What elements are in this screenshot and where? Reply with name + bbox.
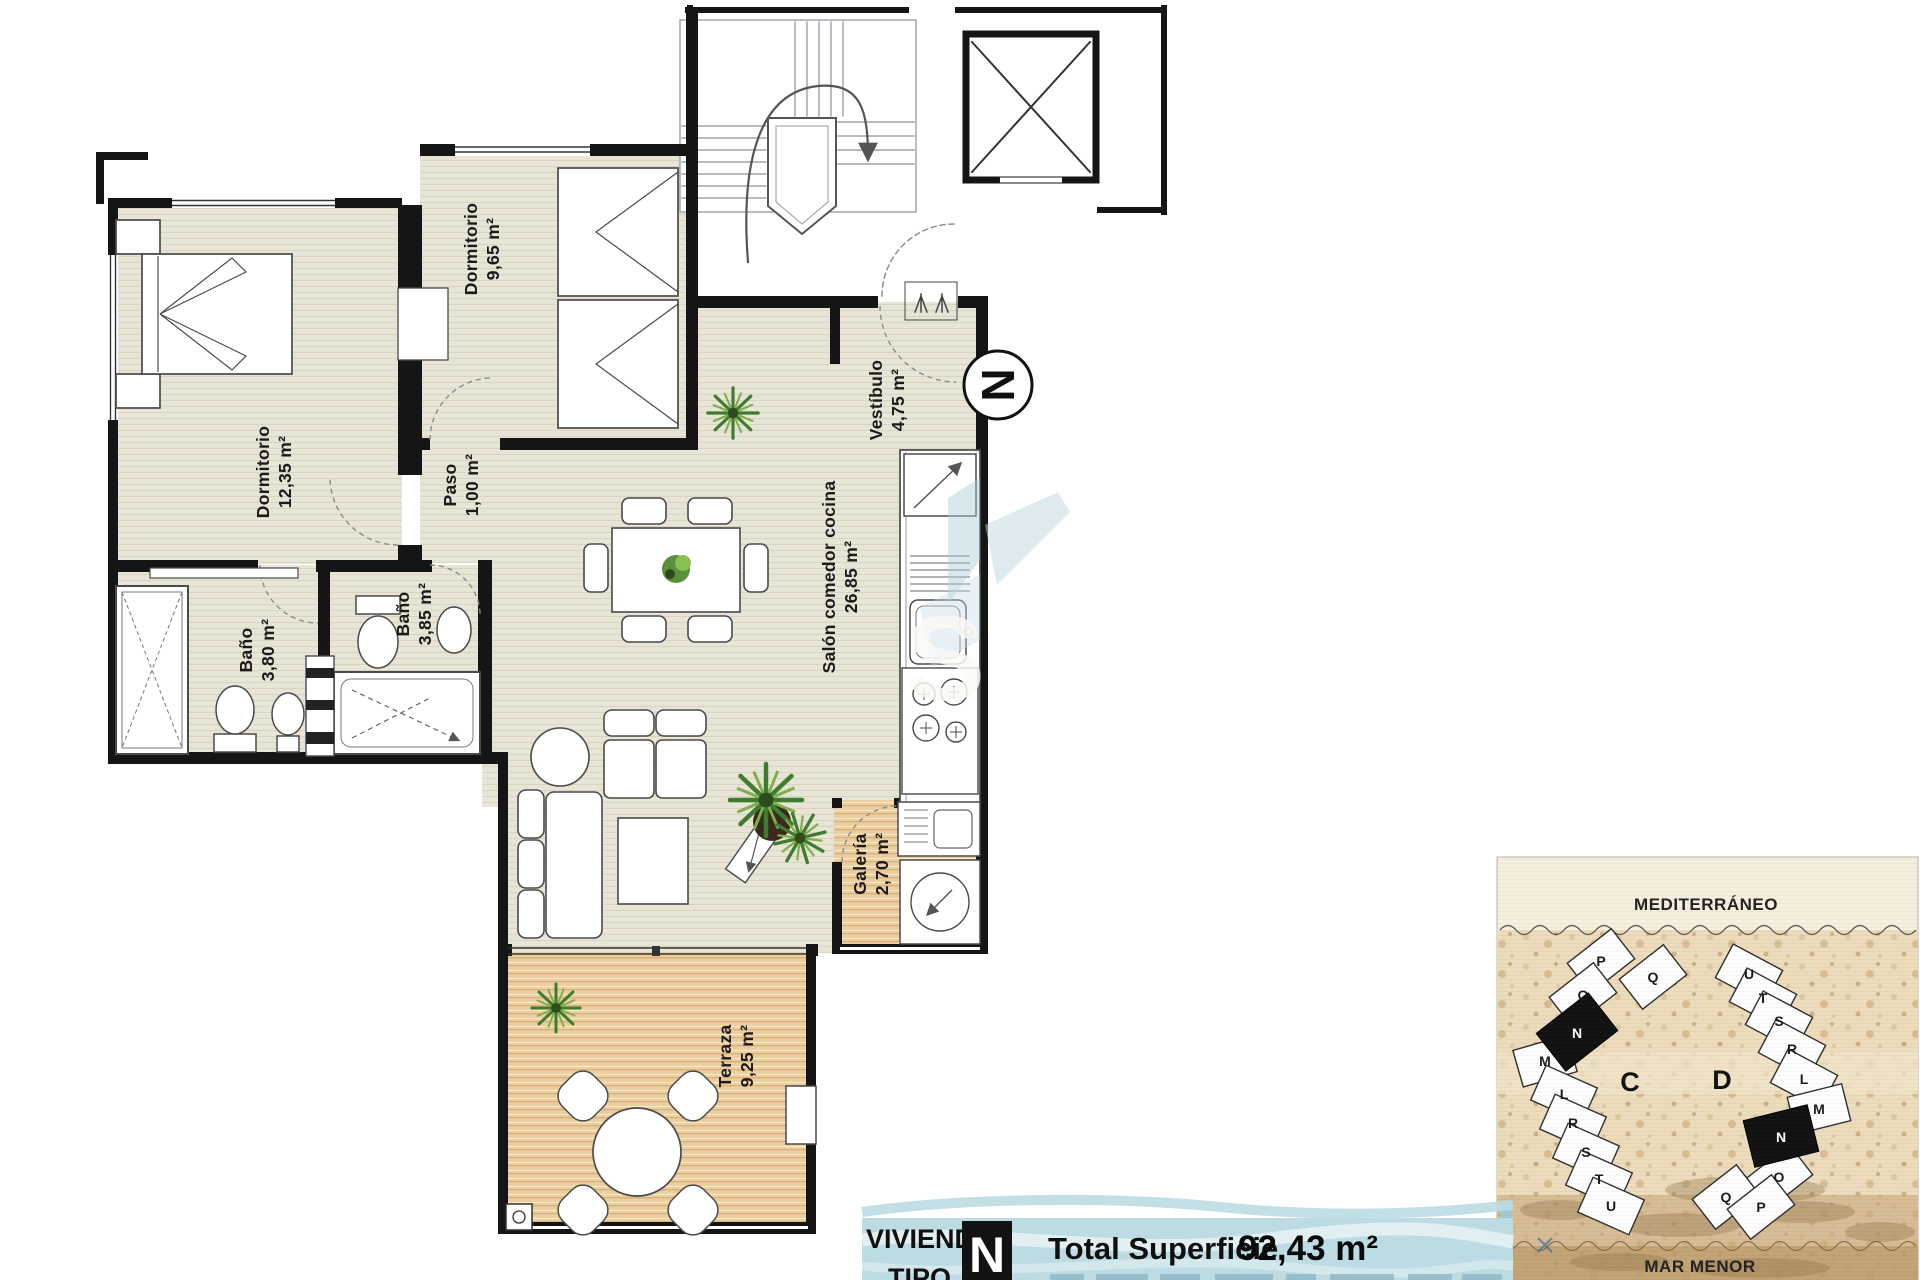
planter-box [786, 1086, 816, 1144]
stair-core [680, 8, 1164, 320]
type-letter: N [969, 1227, 1005, 1280]
site-map: MEDITERRÁNEO P Q O N M L R S T U C [1497, 857, 1918, 1280]
north-arrow: N [964, 351, 1032, 419]
shelf-unit [306, 656, 334, 756]
toilet [214, 686, 256, 752]
sink [437, 607, 471, 653]
total-superficie-value: 92,43 m² [1238, 1229, 1378, 1268]
corner-drain [506, 1204, 532, 1230]
svg-text:Vestíbulo: Vestíbulo [866, 360, 886, 441]
laundry-sink [898, 802, 980, 856]
svg-text:Terraza: Terraza [715, 1024, 735, 1087]
svg-text:4,75 m²: 4,75 m² [888, 369, 908, 431]
svg-text:26,85 m²: 26,85 m² [841, 541, 861, 613]
svg-text:Galería: Galería [850, 833, 870, 894]
svg-text:Baño: Baño [393, 592, 413, 637]
svg-text:Dormitorio: Dormitorio [461, 203, 481, 295]
tipo-label: TIPO [888, 1263, 951, 1280]
svg-text:Paso: Paso [440, 463, 460, 506]
svg-text:Dormitorio: Dormitorio [253, 426, 273, 518]
north-letter: N [972, 368, 1024, 401]
title-block: VIVIENDA TIPO N Total Superficie 92,43 m… [862, 1200, 1513, 1280]
watermark-letter: S [905, 592, 985, 726]
svg-text:9,65 m²: 9,65 m² [483, 218, 503, 280]
plan-canvas: S Dormitorio 12,35 m² Dormitorio 9,65 m²… [0, 0, 1920, 1280]
bathtub [334, 672, 480, 754]
svg-text:9,25 m²: 9,25 m² [737, 1025, 757, 1087]
terrace-table [593, 1108, 681, 1196]
washing-machine [900, 860, 980, 944]
room-galeria [898, 802, 980, 944]
bidet [272, 693, 304, 752]
svg-text:3,85 m²: 3,85 m² [415, 583, 435, 645]
shower-tray [116, 586, 188, 754]
svg-text:Baño: Baño [236, 628, 256, 673]
svg-text:Salón comedor cocina: Salón comedor cocina [819, 481, 839, 674]
svg-text:12,35 m²: 12,35 m² [275, 436, 295, 508]
svg-text:1,00 m²: 1,00 m² [462, 454, 482, 516]
elevator-shaft [966, 34, 1096, 186]
svg-text:2,70 m²: 2,70 m² [872, 833, 892, 895]
floor-plan-page: S Dormitorio 12,35 m² Dormitorio 9,65 m²… [0, 0, 1920, 1280]
svg-text:3,80 m²: 3,80 m² [258, 619, 278, 681]
